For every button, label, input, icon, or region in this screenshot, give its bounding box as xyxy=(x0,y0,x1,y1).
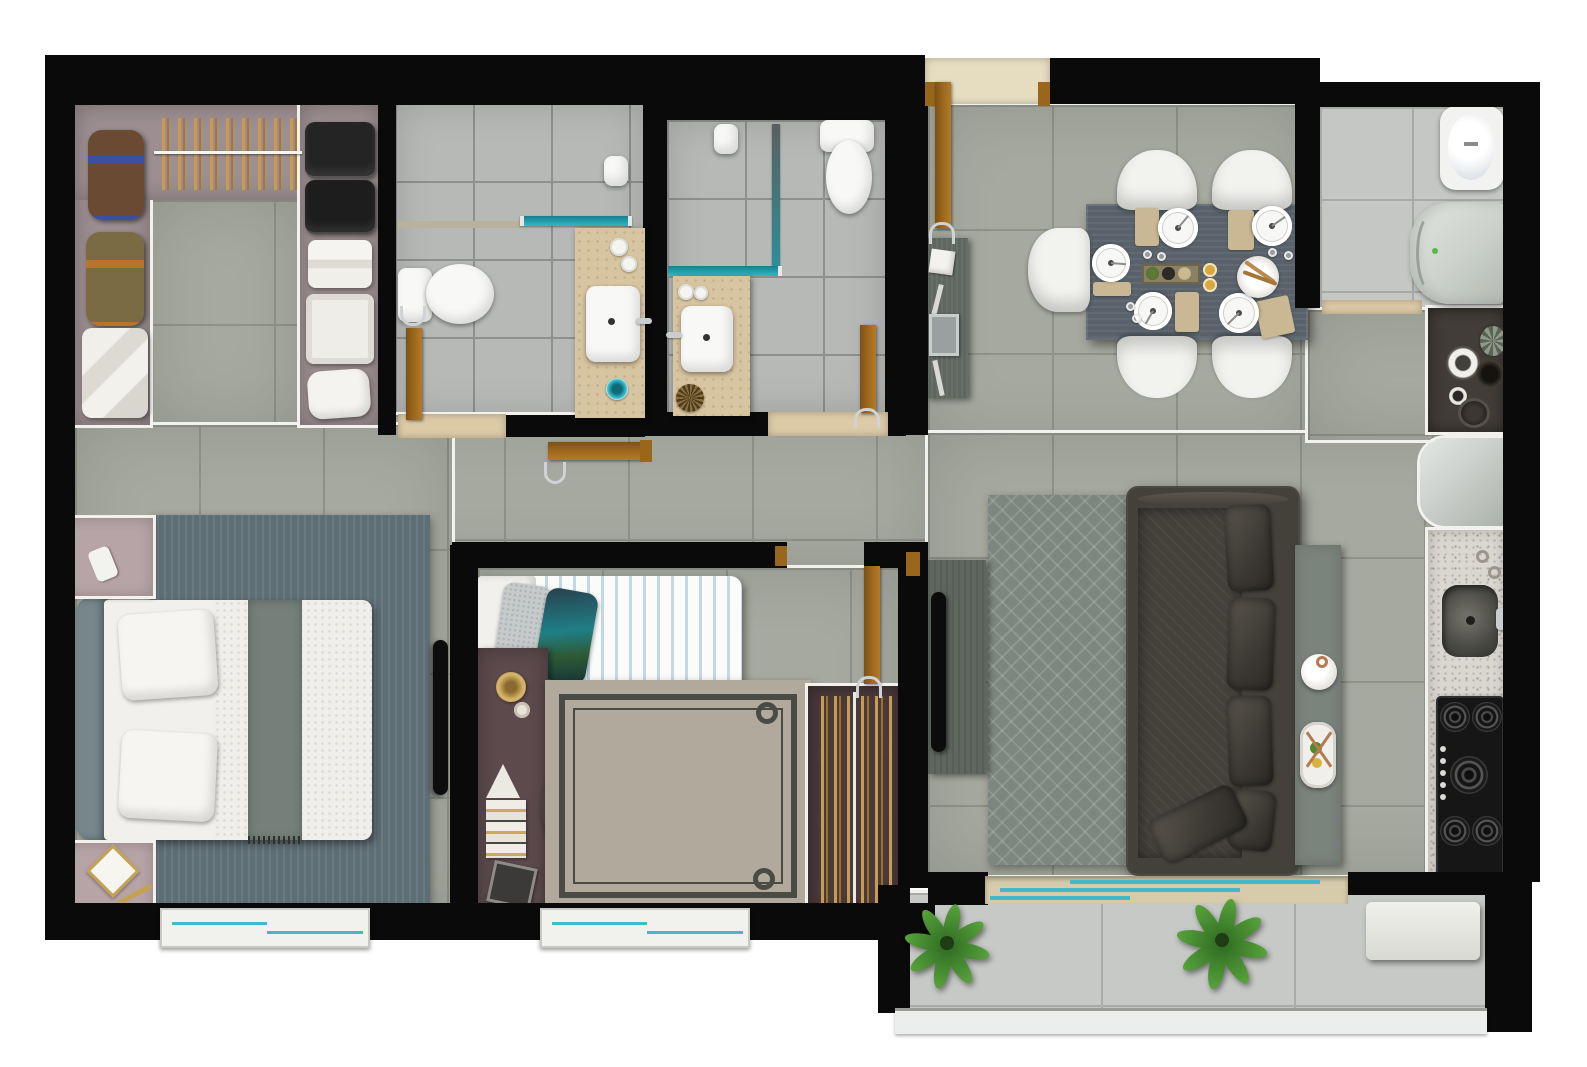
side-table xyxy=(1295,545,1341,865)
storage-basket xyxy=(306,294,374,364)
master-suite-door xyxy=(548,442,642,460)
stove-knob-2 xyxy=(1440,758,1446,764)
placemat-3 xyxy=(1093,282,1131,296)
folded-linens xyxy=(82,328,148,418)
washer-door-arc xyxy=(1416,214,1446,292)
counter-drain-2 xyxy=(1488,566,1501,579)
stove-knob-4 xyxy=(1440,782,1446,788)
glass-6 xyxy=(1132,314,1141,323)
wall-mid-lower xyxy=(898,558,928,888)
small-pillow xyxy=(306,368,371,420)
sofa-back-cushion-2 xyxy=(1226,597,1275,691)
water-heater-top xyxy=(1448,114,1494,180)
bathroom-1-door xyxy=(406,328,422,420)
placemat-4 xyxy=(1175,292,1199,332)
entry-door xyxy=(935,82,951,228)
side-table-vase-ring xyxy=(1316,656,1328,668)
wall-living-bottom-right xyxy=(1348,872,1505,895)
plant-core xyxy=(940,936,953,949)
door-post-b xyxy=(775,546,787,566)
bedroom-2-window-glass-2 xyxy=(647,931,743,934)
rug-scroll-bottom xyxy=(753,868,775,890)
master-pillow-top xyxy=(117,609,219,701)
master-window-glass-2 xyxy=(267,931,363,934)
door-post-a xyxy=(640,440,652,462)
soap-dish-2a xyxy=(678,284,694,300)
shower-2-glass-horizontal xyxy=(668,266,782,276)
glass-5 xyxy=(1126,302,1135,311)
sofa-armrest-curve xyxy=(1138,492,1288,506)
wall-bath2-right-upper xyxy=(885,98,928,435)
teal-jar xyxy=(606,378,628,400)
yellow-bowl-1 xyxy=(1203,263,1217,277)
glass-2 xyxy=(1157,252,1166,261)
closet-rail xyxy=(154,151,302,154)
faucet-1 xyxy=(636,318,652,324)
glass-3 xyxy=(1268,248,1277,257)
hanging-clothes xyxy=(158,118,298,190)
slider-glass-2 xyxy=(1000,888,1240,892)
placemat-2 xyxy=(1228,210,1254,250)
apartment-floor-plan xyxy=(0,0,1587,1067)
living-rug xyxy=(988,495,1145,865)
soap-dish-2b xyxy=(694,286,708,300)
yellow-bowl-2 xyxy=(1203,278,1217,292)
potted-plant-left xyxy=(910,906,984,980)
sideboard-cube xyxy=(928,248,955,275)
sofa-back-cushion-1 xyxy=(1224,504,1274,592)
slider-glass-3 xyxy=(990,896,1130,900)
soap-dish-1b xyxy=(621,256,637,272)
glass-1 xyxy=(1143,250,1152,259)
wall-bath2-top xyxy=(645,98,905,120)
bed2-rug-border-inner xyxy=(573,708,783,884)
wardrobe-clothes-left xyxy=(818,696,850,906)
towel-stack xyxy=(308,240,372,288)
burner-top-right xyxy=(1472,702,1502,732)
shower-glass-partition xyxy=(520,216,632,226)
wall-balcony-right xyxy=(1485,872,1532,1032)
master-window xyxy=(160,908,370,948)
shampoo-bottle-2 xyxy=(714,124,738,154)
counter-dark-bowl xyxy=(1476,360,1504,388)
bathroom-2-door xyxy=(860,325,876,413)
kitchen-sink-drain xyxy=(1466,616,1475,625)
toilet-2-bowl xyxy=(826,140,872,214)
stove-knob-1 xyxy=(1440,746,1446,752)
faucet-2 xyxy=(666,332,682,338)
balcony-bench xyxy=(1366,902,1480,960)
wall-service-divider xyxy=(1295,58,1320,308)
bedroom-2-door xyxy=(864,566,880,684)
refrigerator xyxy=(1420,438,1506,526)
garment-bag-black-1 xyxy=(305,122,375,178)
wall-closet-bath1 xyxy=(378,98,396,435)
bedroom-2-door-handle xyxy=(856,676,882,698)
wall-bedroom-divider xyxy=(450,545,478,920)
runner-bowl-dark xyxy=(1162,267,1175,280)
garment-bag-black-2 xyxy=(305,180,375,234)
slider-glass-1 xyxy=(1070,880,1320,884)
door-post-c xyxy=(906,552,920,576)
stove-knob-5 xyxy=(1440,794,1446,800)
duffel-bag-olive xyxy=(86,232,144,326)
sink-2-drain xyxy=(703,334,710,341)
burner-center xyxy=(1450,756,1488,794)
wall-bath2-bottom-right xyxy=(886,412,906,436)
duffel-bag-brown xyxy=(88,130,144,220)
balcony-railing xyxy=(895,1008,1487,1034)
placemat-1 xyxy=(1135,208,1159,246)
runner-bowl-cream xyxy=(1178,267,1191,280)
rug-scroll-top xyxy=(756,702,778,724)
bedroom-2-window-glass-1 xyxy=(552,922,647,925)
desk-gold-disc xyxy=(496,672,526,702)
wall-left xyxy=(45,55,75,940)
burner-bottom-left xyxy=(1440,816,1470,846)
shower-ledge xyxy=(398,221,522,228)
drain-deco xyxy=(676,384,704,412)
wardrobe-clothes-right xyxy=(858,696,892,906)
wall-bed2-top xyxy=(452,542,787,568)
sofa-back-cushion-3 xyxy=(1226,695,1273,786)
washer-indicator xyxy=(1432,248,1438,254)
desk-cup xyxy=(514,702,530,718)
master-pillow-bottom xyxy=(118,730,218,823)
bathroom-2-door-handle xyxy=(854,408,880,428)
wall-bath1-bottom xyxy=(500,415,645,437)
master-window-glass-1 xyxy=(172,922,267,925)
desk-books xyxy=(486,800,526,858)
wall-right xyxy=(1503,82,1540,882)
tv xyxy=(931,592,946,752)
closet-floor xyxy=(150,200,300,425)
water-heater-label xyxy=(1464,142,1478,146)
master-suite-door-handle xyxy=(544,462,566,484)
service-threshold xyxy=(1322,300,1422,314)
runner-bowl-green xyxy=(1146,267,1159,280)
counter-drain-1 xyxy=(1476,550,1489,563)
burner-top-left xyxy=(1440,702,1470,732)
stove-knob-3 xyxy=(1440,770,1446,776)
potted-plant-right xyxy=(1182,900,1262,980)
wall-top-entry-right xyxy=(1050,58,1295,104)
glass-4 xyxy=(1284,251,1293,260)
toilet-1-bowl xyxy=(426,264,494,324)
master-wall-tv xyxy=(433,640,448,795)
wardrobe-rail xyxy=(853,692,856,910)
dining-chair-left xyxy=(1028,228,1090,312)
master-throw-blanket xyxy=(248,600,302,840)
soap-dish-1a xyxy=(610,238,628,256)
wall-living-bottom-left xyxy=(928,872,988,905)
bedroom-2-window xyxy=(540,908,750,948)
sideboard-tray xyxy=(929,314,959,356)
counter-round-tray xyxy=(1458,398,1490,428)
master-throw-fringe xyxy=(248,836,302,844)
burner-bottom-right xyxy=(1472,816,1502,846)
wall-bath1-bath2 xyxy=(643,98,667,435)
shampoo-bottle-1 xyxy=(604,156,628,186)
shower-2-glass-vertical xyxy=(772,124,780,274)
sink-1-drain xyxy=(608,318,615,325)
entry-door-post-right xyxy=(1038,82,1050,106)
counter-ring-plate xyxy=(1446,346,1480,380)
entry-door-handle xyxy=(929,222,955,244)
